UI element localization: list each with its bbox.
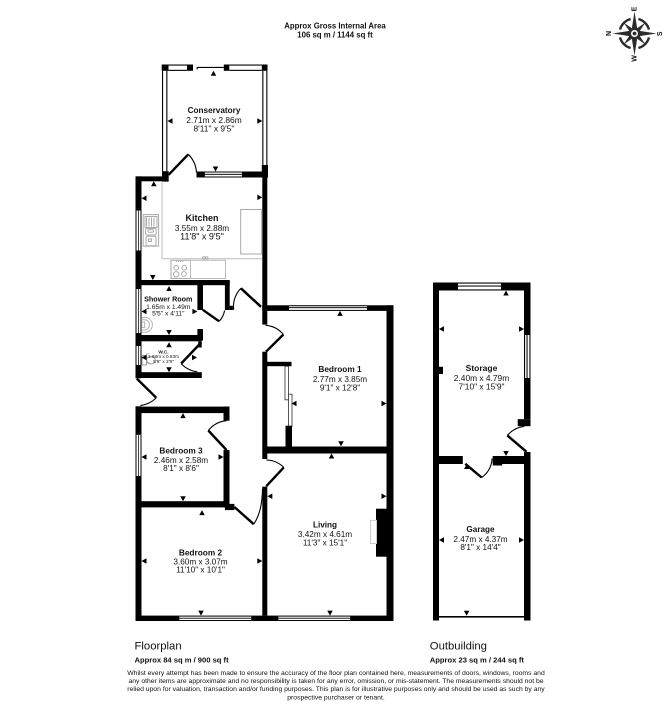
svg-text:Approx 84 sq m / 900 sq ft: Approx 84 sq m / 900 sq ft: [135, 656, 230, 665]
svg-text:Storage: Storage: [466, 363, 498, 373]
svg-text:Garage: Garage: [466, 525, 495, 534]
svg-text:Whilst every attempt has been: Whilst every attempt has been made to en…: [127, 670, 545, 677]
svg-text:11'10" x 10'1": 11'10" x 10'1": [176, 565, 225, 574]
svg-text:Approx Gross Internal Area: Approx Gross Internal Area: [284, 21, 386, 30]
svg-text:Bedroom 1: Bedroom 1: [318, 364, 362, 374]
svg-text:E: E: [631, 6, 638, 11]
svg-text:Outbuilding: Outbuilding: [430, 640, 487, 652]
svg-text:W: W: [631, 55, 638, 62]
svg-text:Living: Living: [313, 521, 337, 530]
svg-text:106 sq m / 1144 sq ft: 106 sq m / 1144 sq ft: [297, 31, 373, 40]
svg-text:S: S: [657, 31, 664, 36]
svg-text:11'3" x 15'1": 11'3" x 15'1": [303, 539, 347, 548]
svg-text:11'8" x 9'5": 11'8" x 9'5": [180, 231, 224, 241]
svg-text:Conservatory: Conservatory: [188, 106, 241, 115]
svg-text:Floorplan: Floorplan: [135, 640, 182, 652]
svg-text:prospective purchaser or tenan: prospective purchaser or tenant.: [287, 694, 385, 701]
svg-text:8'11'' x 9'5'': 8'11'' x 9'5'': [193, 124, 235, 134]
svg-text:Bedroom 3: Bedroom 3: [159, 446, 203, 456]
svg-text:Shower Room: Shower Room: [144, 294, 192, 303]
svg-text:7'10" x 15'9": 7'10" x 15'9": [459, 381, 505, 391]
svg-text:Kitchen: Kitchen: [185, 213, 218, 223]
svg-text:relied upon for valuation, tra: relied upon for valuation, transaction a…: [127, 686, 545, 693]
svg-text:Bedroom 2: Bedroom 2: [179, 548, 223, 558]
svg-text:8'1" x 8'6": 8'1" x 8'6": [163, 464, 199, 473]
svg-text:5'6" x 2'9": 5'6" x 2'9": [153, 359, 174, 364]
svg-text:N: N: [606, 31, 613, 36]
svg-text:Approx 23 sq m / 244 sq ft: Approx 23 sq m / 244 sq ft: [430, 656, 525, 665]
svg-text:8'1" x 14'4": 8'1" x 14'4": [460, 543, 500, 552]
svg-text:any other items are approximat: any other items are approximate and no r…: [128, 678, 543, 685]
svg-text:9'1" x 12'8": 9'1" x 12'8": [320, 383, 360, 392]
svg-text:5'5" x 4'11": 5'5" x 4'11": [152, 311, 185, 318]
